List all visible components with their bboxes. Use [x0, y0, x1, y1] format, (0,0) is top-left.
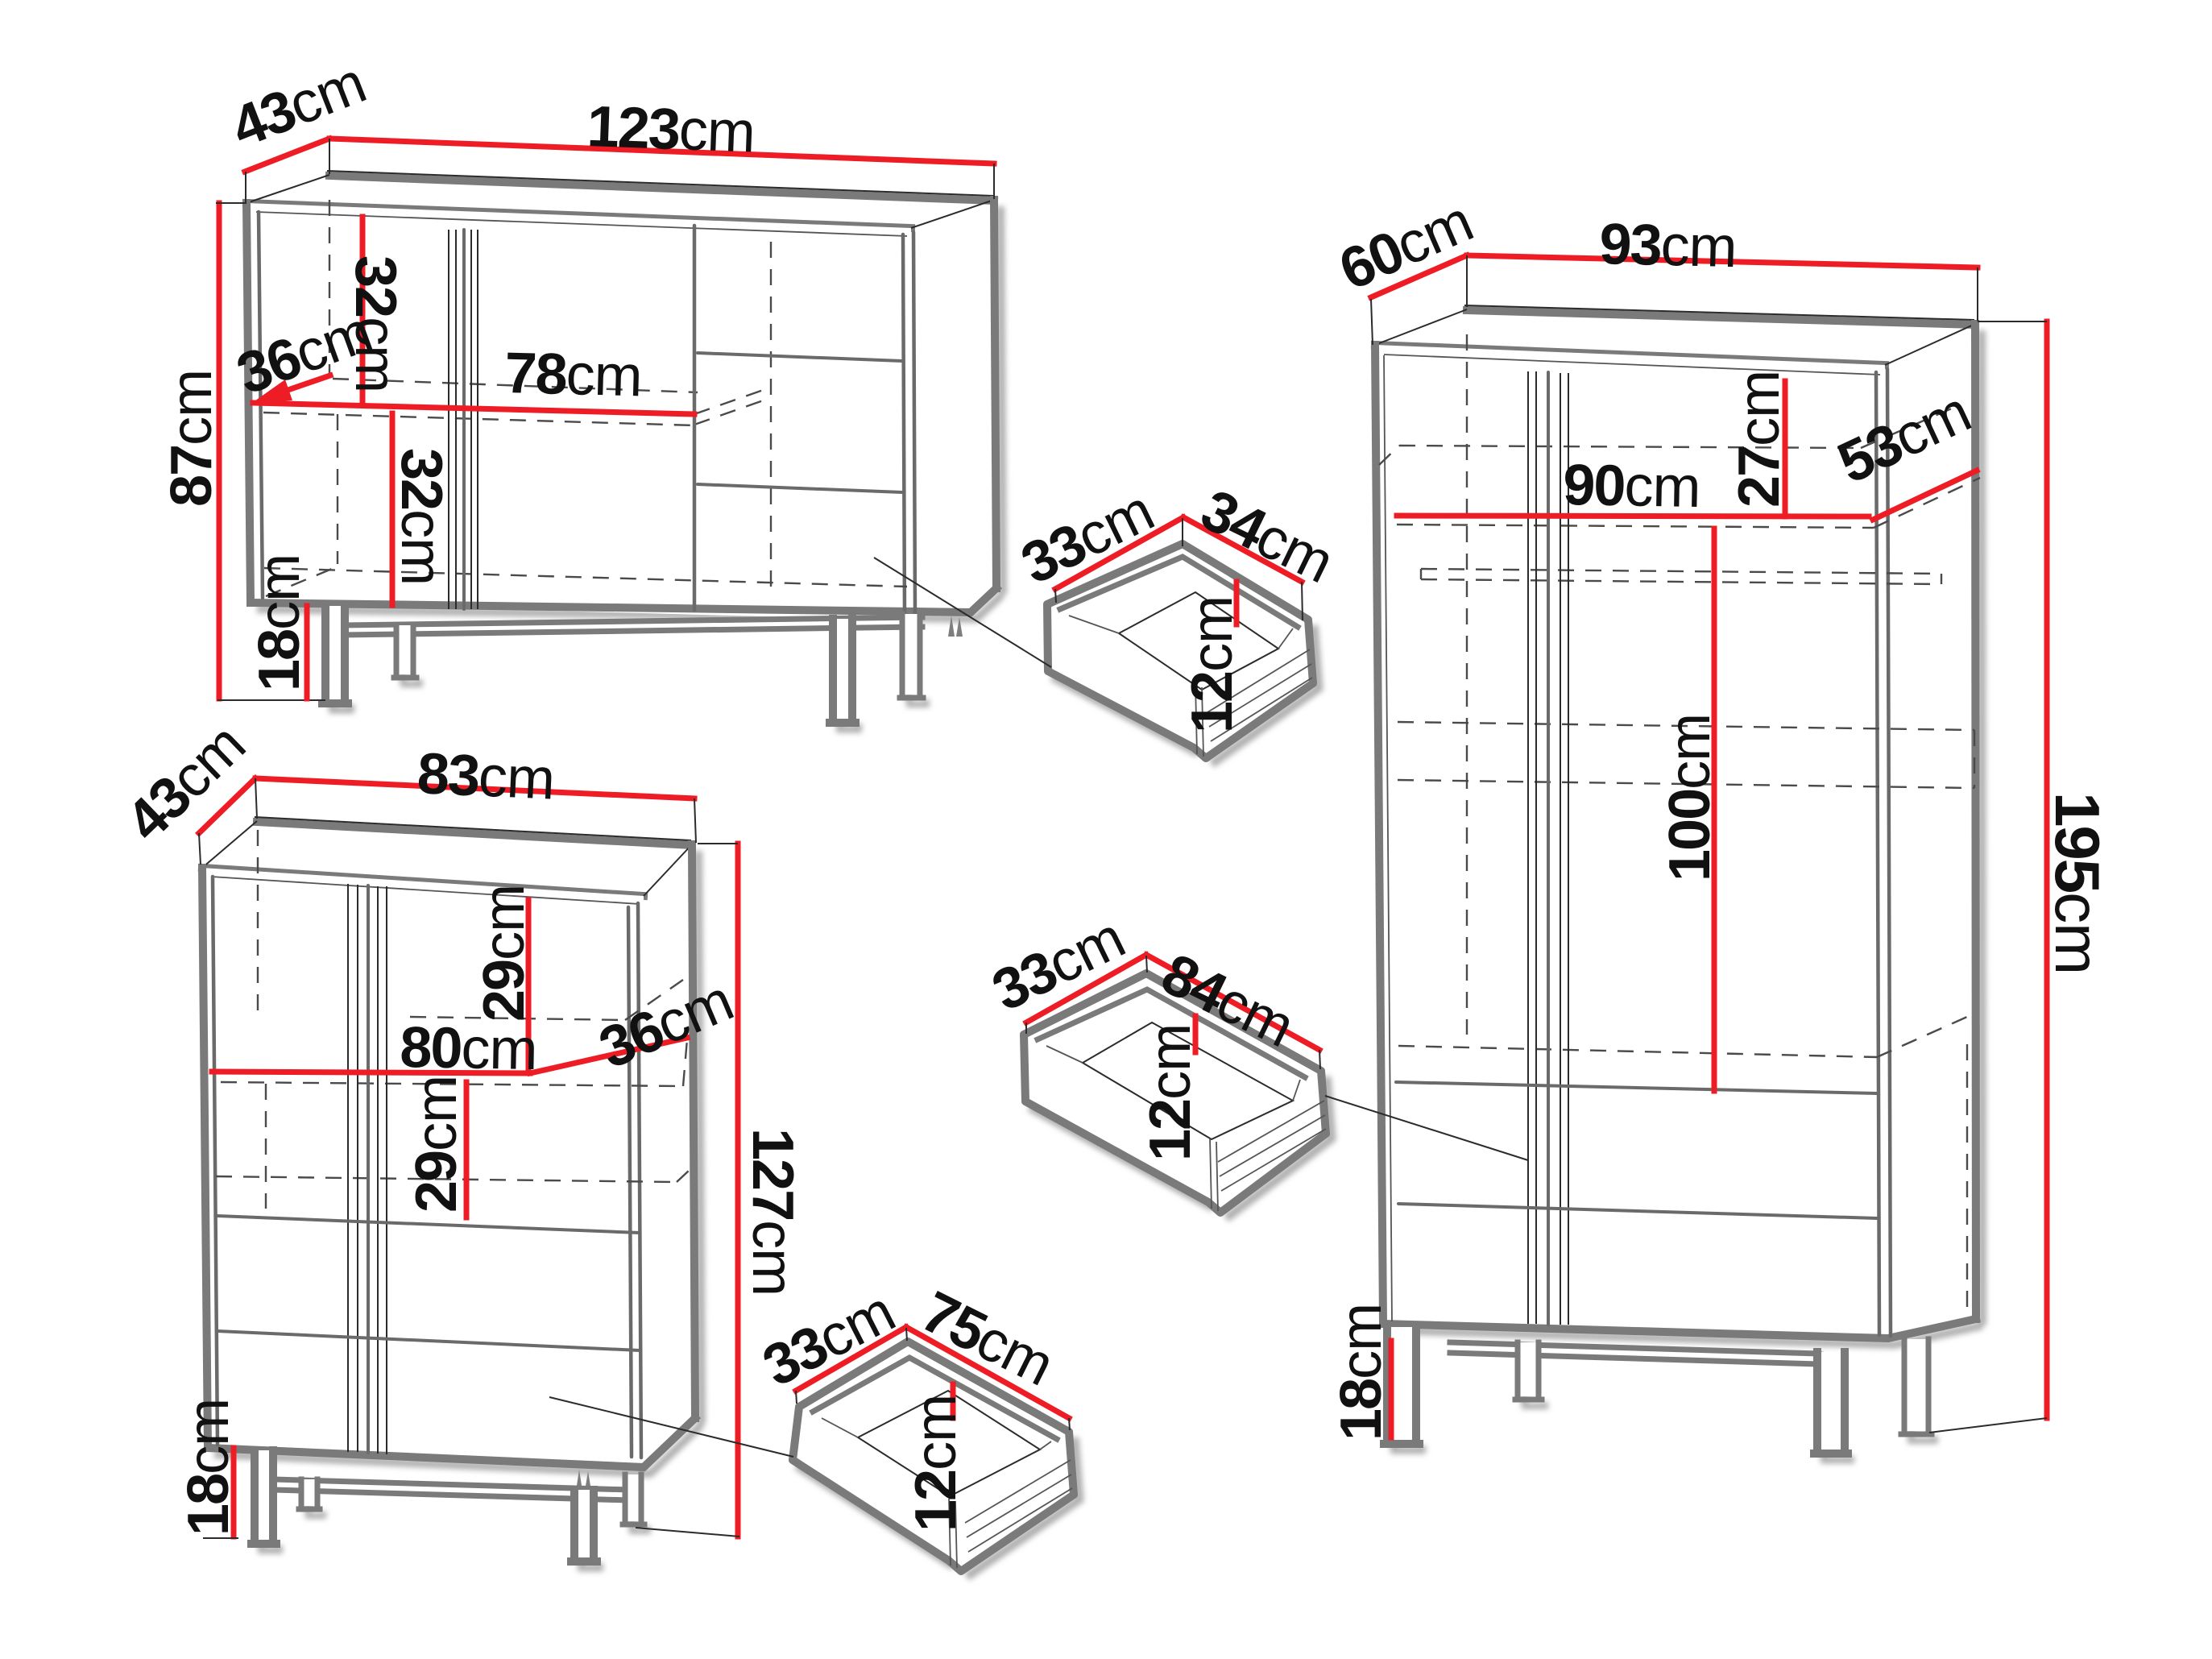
- svg-text:18cm: 18cm: [176, 1399, 241, 1536]
- svg-text:29cm: 29cm: [404, 1076, 469, 1213]
- svg-text:29cm: 29cm: [472, 885, 536, 1022]
- svg-text:123cm: 123cm: [586, 94, 756, 165]
- svg-text:18cm: 18cm: [1329, 1304, 1394, 1441]
- svg-text:93cm: 93cm: [1599, 212, 1738, 280]
- svg-text:12cm: 12cm: [904, 1395, 968, 1532]
- svg-text:87cm: 87cm: [159, 370, 224, 507]
- svg-text:83cm: 83cm: [416, 741, 556, 812]
- svg-text:27cm: 27cm: [1727, 371, 1792, 508]
- svg-text:100cm: 100cm: [1658, 714, 1722, 881]
- svg-text:80cm: 80cm: [400, 1015, 537, 1082]
- svg-text:78cm: 78cm: [504, 341, 643, 409]
- svg-text:195cm: 195cm: [2042, 792, 2113, 974]
- svg-text:90cm: 90cm: [1563, 453, 1700, 520]
- svg-text:32cm: 32cm: [389, 448, 454, 585]
- svg-text:127cm: 127cm: [740, 1128, 805, 1296]
- svg-text:18cm: 18cm: [247, 554, 312, 691]
- svg-text:12cm: 12cm: [1180, 596, 1245, 733]
- svg-text:12cm: 12cm: [1138, 1024, 1203, 1161]
